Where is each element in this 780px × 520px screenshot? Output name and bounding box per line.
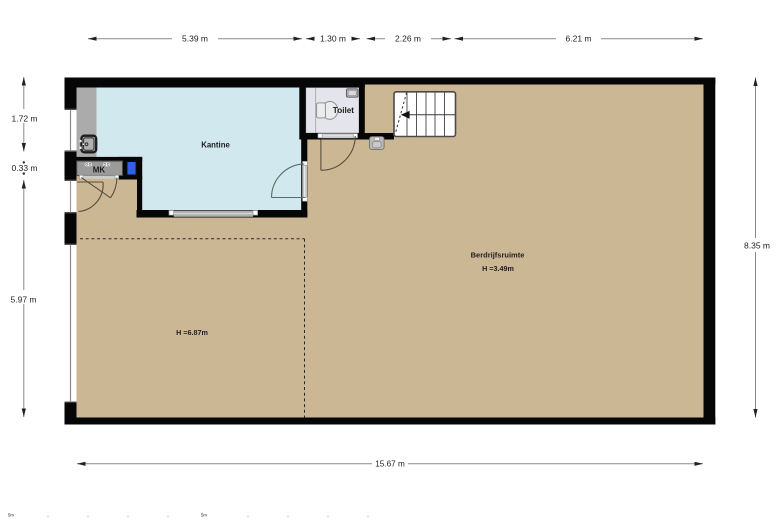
- svg-text:5.39 m: 5.39 m: [182, 34, 208, 44]
- svg-text:8.35 m: 8.35 m: [744, 241, 770, 251]
- svg-text:15.67 m: 15.67 m: [375, 460, 405, 469]
- svg-text:Berdrijfsruimte: Berdrijfsruimte: [471, 250, 525, 259]
- svg-text:0.33 m: 0.33 m: [12, 163, 38, 173]
- svg-text:5m: 5m: [8, 513, 14, 518]
- svg-text:1.30 m: 1.30 m: [320, 34, 346, 44]
- svg-text:1.72 m: 1.72 m: [12, 114, 38, 124]
- svg-text:5m: 5m: [201, 513, 207, 518]
- svg-text:Kantine: Kantine: [201, 141, 230, 150]
- svg-text:Toilet: Toilet: [333, 106, 354, 115]
- svg-text:H =6.87m: H =6.87m: [176, 328, 208, 337]
- svg-text:H =3.49m: H =3.49m: [482, 264, 514, 273]
- svg-text:MK: MK: [93, 165, 106, 174]
- svg-text:5.97 m: 5.97 m: [11, 295, 37, 305]
- svg-text:2.26 m: 2.26 m: [395, 34, 421, 44]
- svg-text:6.21 m: 6.21 m: [566, 34, 592, 44]
